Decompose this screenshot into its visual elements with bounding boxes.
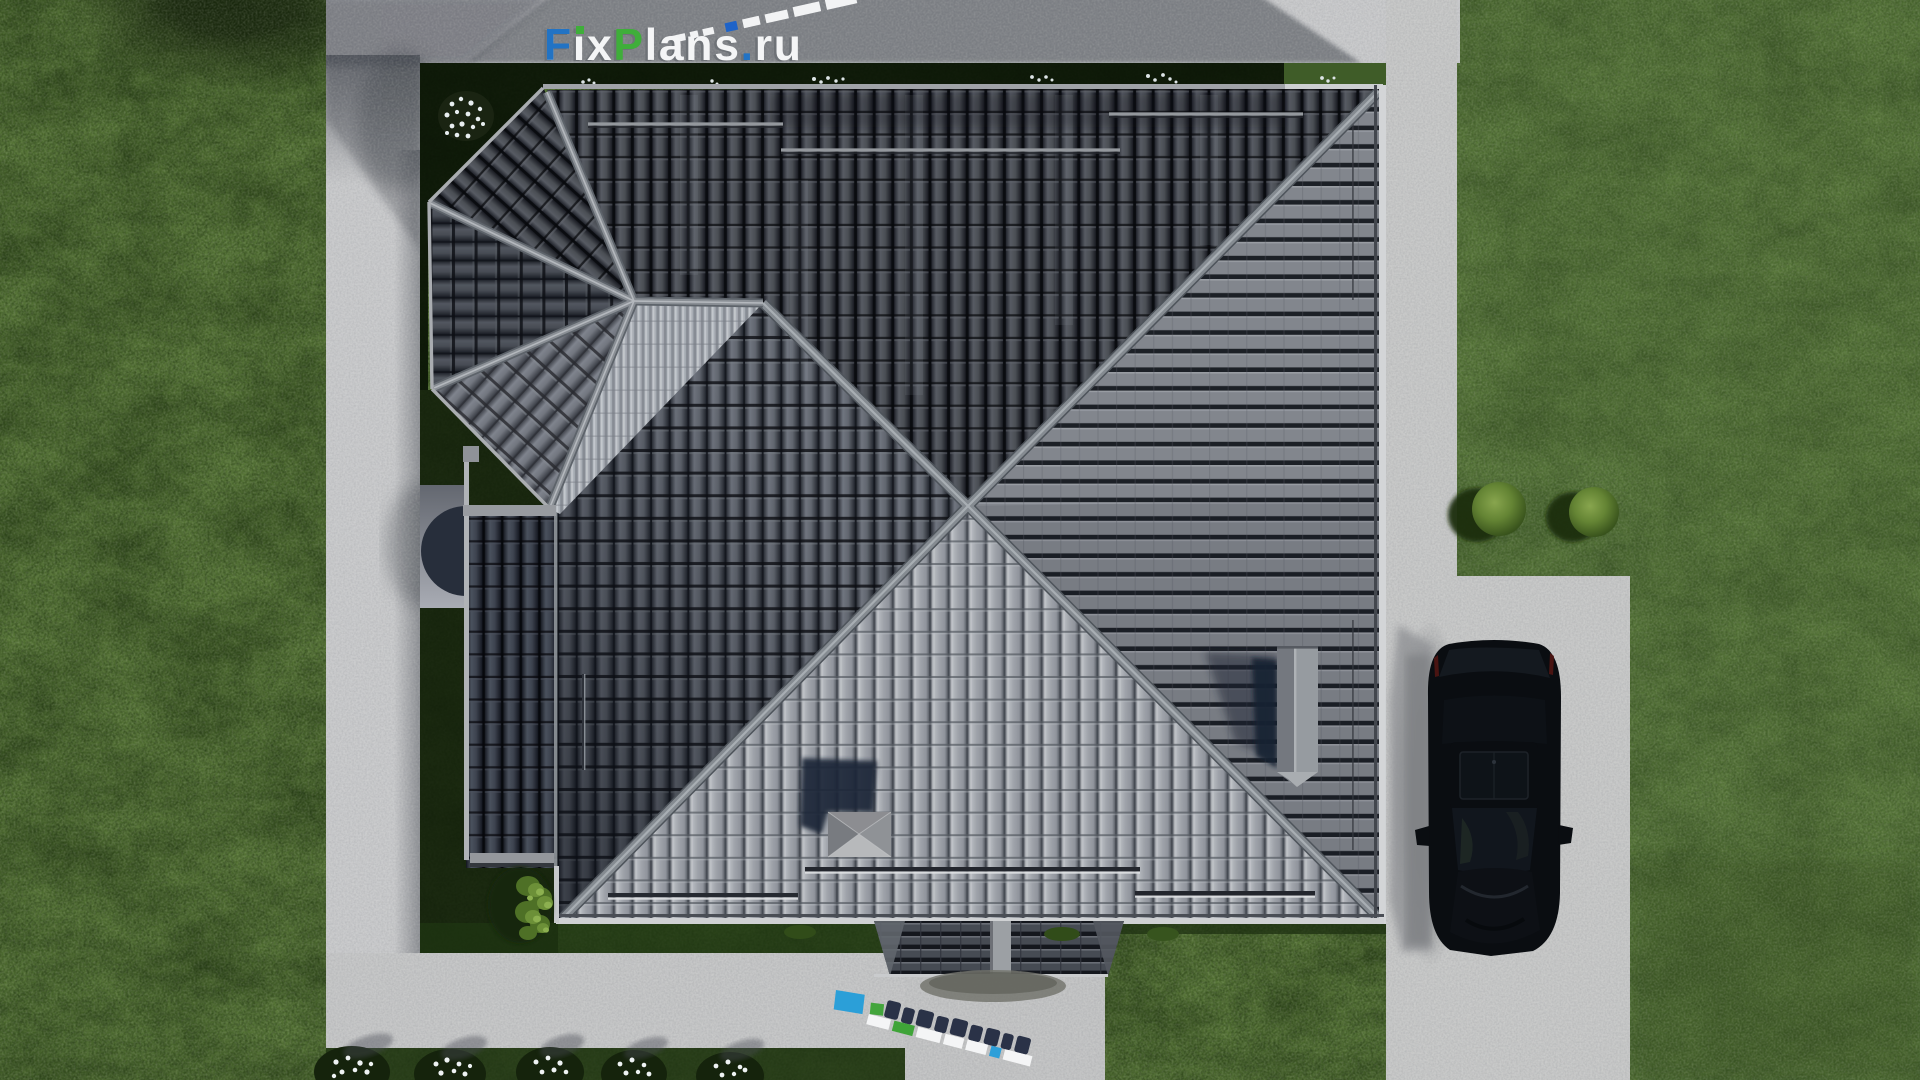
svg-text:F: F	[544, 21, 573, 70]
